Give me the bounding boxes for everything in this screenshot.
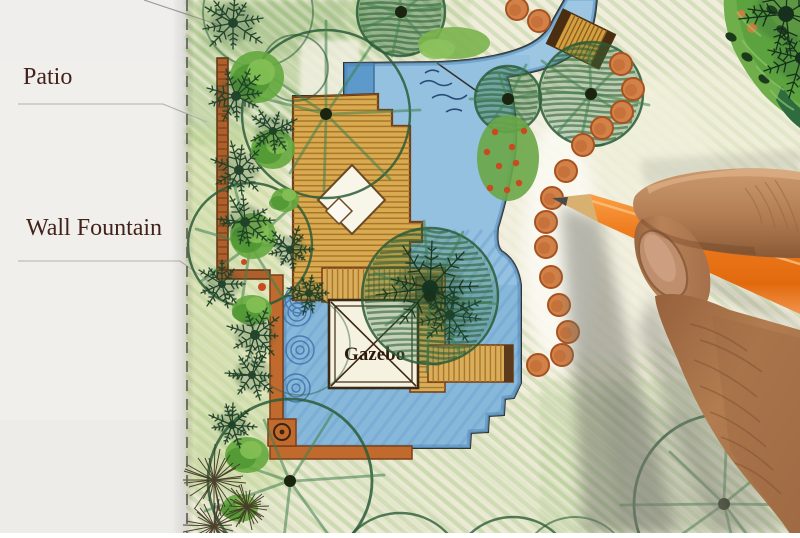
svg-text:Wall Fountain: Wall Fountain xyxy=(26,215,162,241)
svg-text:Patio: Patio xyxy=(23,64,72,90)
